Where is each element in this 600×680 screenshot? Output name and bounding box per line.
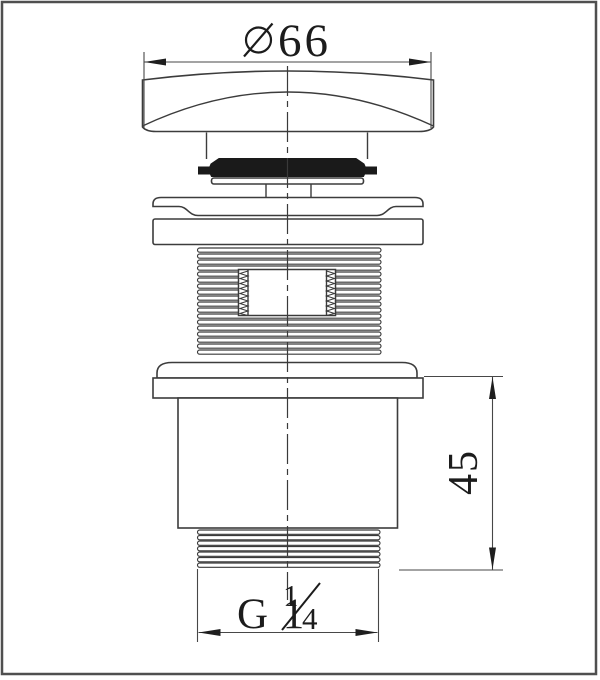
drawing-canvas: 66 45 G 1 1 4 xyxy=(0,0,600,680)
dim-bottom-thread: G 1 1 4 xyxy=(198,569,379,642)
technical-drawing: 66 45 G 1 1 4 xyxy=(0,0,600,680)
dim-arrow-right xyxy=(356,629,378,636)
dim-bottom-thread-numerator: 1 xyxy=(283,578,299,613)
dim-arrow-left xyxy=(199,629,221,636)
dim-arrow-down xyxy=(489,548,496,570)
dim-top-diameter-label: 66 xyxy=(278,15,331,67)
dim-arrow-left xyxy=(144,59,166,66)
stem xyxy=(266,185,311,198)
dim-arrow-right xyxy=(409,59,431,66)
diameter-symbol-icon xyxy=(244,24,273,57)
dim-arrow-up xyxy=(489,377,496,399)
threaded-body xyxy=(198,248,382,354)
dim-right-height-label: 45 xyxy=(441,449,487,495)
dim-bottom-thread-denominator: 4 xyxy=(302,601,318,636)
dim-right-height: 45 xyxy=(399,377,503,571)
lower-thread xyxy=(198,530,381,567)
